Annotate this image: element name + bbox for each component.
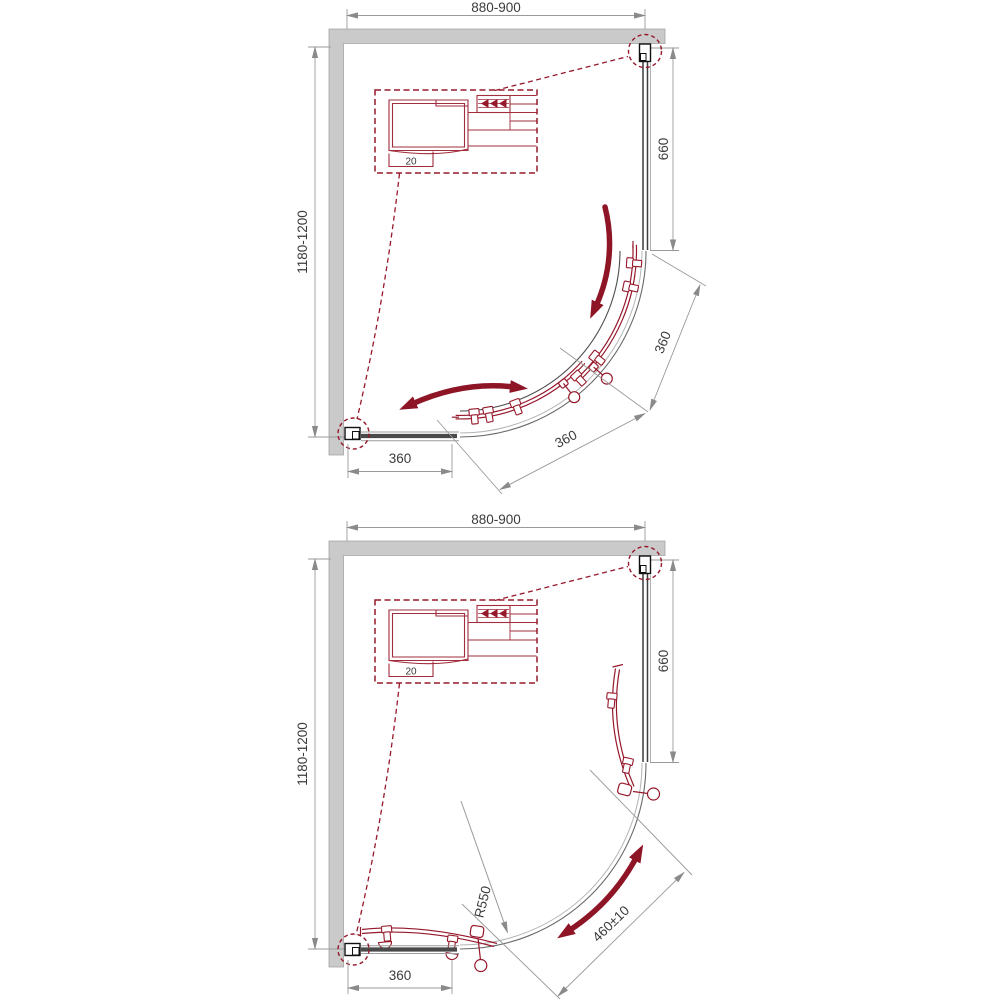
right-panel-dim-label: 660 (656, 138, 671, 161)
upper-door-dim-label: 360 (652, 329, 674, 356)
radius-callout: R550 (461, 801, 508, 933)
profile-detail-callout: 20 (356, 567, 628, 936)
opening-slide-arrow (569, 857, 637, 931)
dim-lower-door (437, 348, 648, 494)
detail-leader-bottom-left (357, 174, 400, 420)
diagram-bottom: 880-900 1180-1200 660 (295, 512, 692, 999)
height-dim-label: 1180-1200 (295, 722, 310, 786)
wall-corner (329, 29, 665, 455)
detail-leader-top-right (495, 567, 628, 601)
detail-dim-label: 20 (405, 157, 417, 168)
door-rollers (379, 693, 634, 961)
detail-leader-bottom-left (356, 684, 400, 936)
width-dim-label: 880-900 (471, 512, 521, 527)
bottom-panel-dim-label: 360 (389, 968, 412, 983)
width-dim-label: 880-900 (471, 0, 521, 15)
height-dim-label: 1180-1200 (295, 210, 310, 274)
right-fixed-panel (640, 44, 651, 250)
detail-leader-top-right (495, 57, 628, 91)
door-handles (470, 782, 660, 971)
lower-slide-arrow (412, 386, 514, 404)
diagram-top: 880-900 1180-1200 660 (295, 0, 706, 494)
slide-direction-arrows (569, 857, 637, 931)
detail-dim-label: 20 (405, 667, 417, 678)
technical-drawing-page: 880-900 1180-1200 660 (0, 0, 1000, 1000)
profile-detail-callout: 20 (357, 57, 628, 420)
upper-slide-arrow (596, 207, 610, 306)
right-panel-dim-label: 660 (656, 650, 671, 673)
radius-dim-label: R550 (471, 884, 493, 919)
dim-opening (462, 770, 692, 999)
lower-door-dim-label: 360 (552, 427, 579, 451)
shower-enclosure-technical-drawing: 880-900 1180-1200 660 (0, 0, 1000, 1000)
bottom-fixed-panel (345, 944, 459, 956)
right-fixed-panel (640, 556, 651, 762)
door-rollers (469, 258, 642, 425)
bottom-panel-dim-label: 360 (389, 451, 412, 466)
bottom-fixed-panel (345, 428, 459, 441)
